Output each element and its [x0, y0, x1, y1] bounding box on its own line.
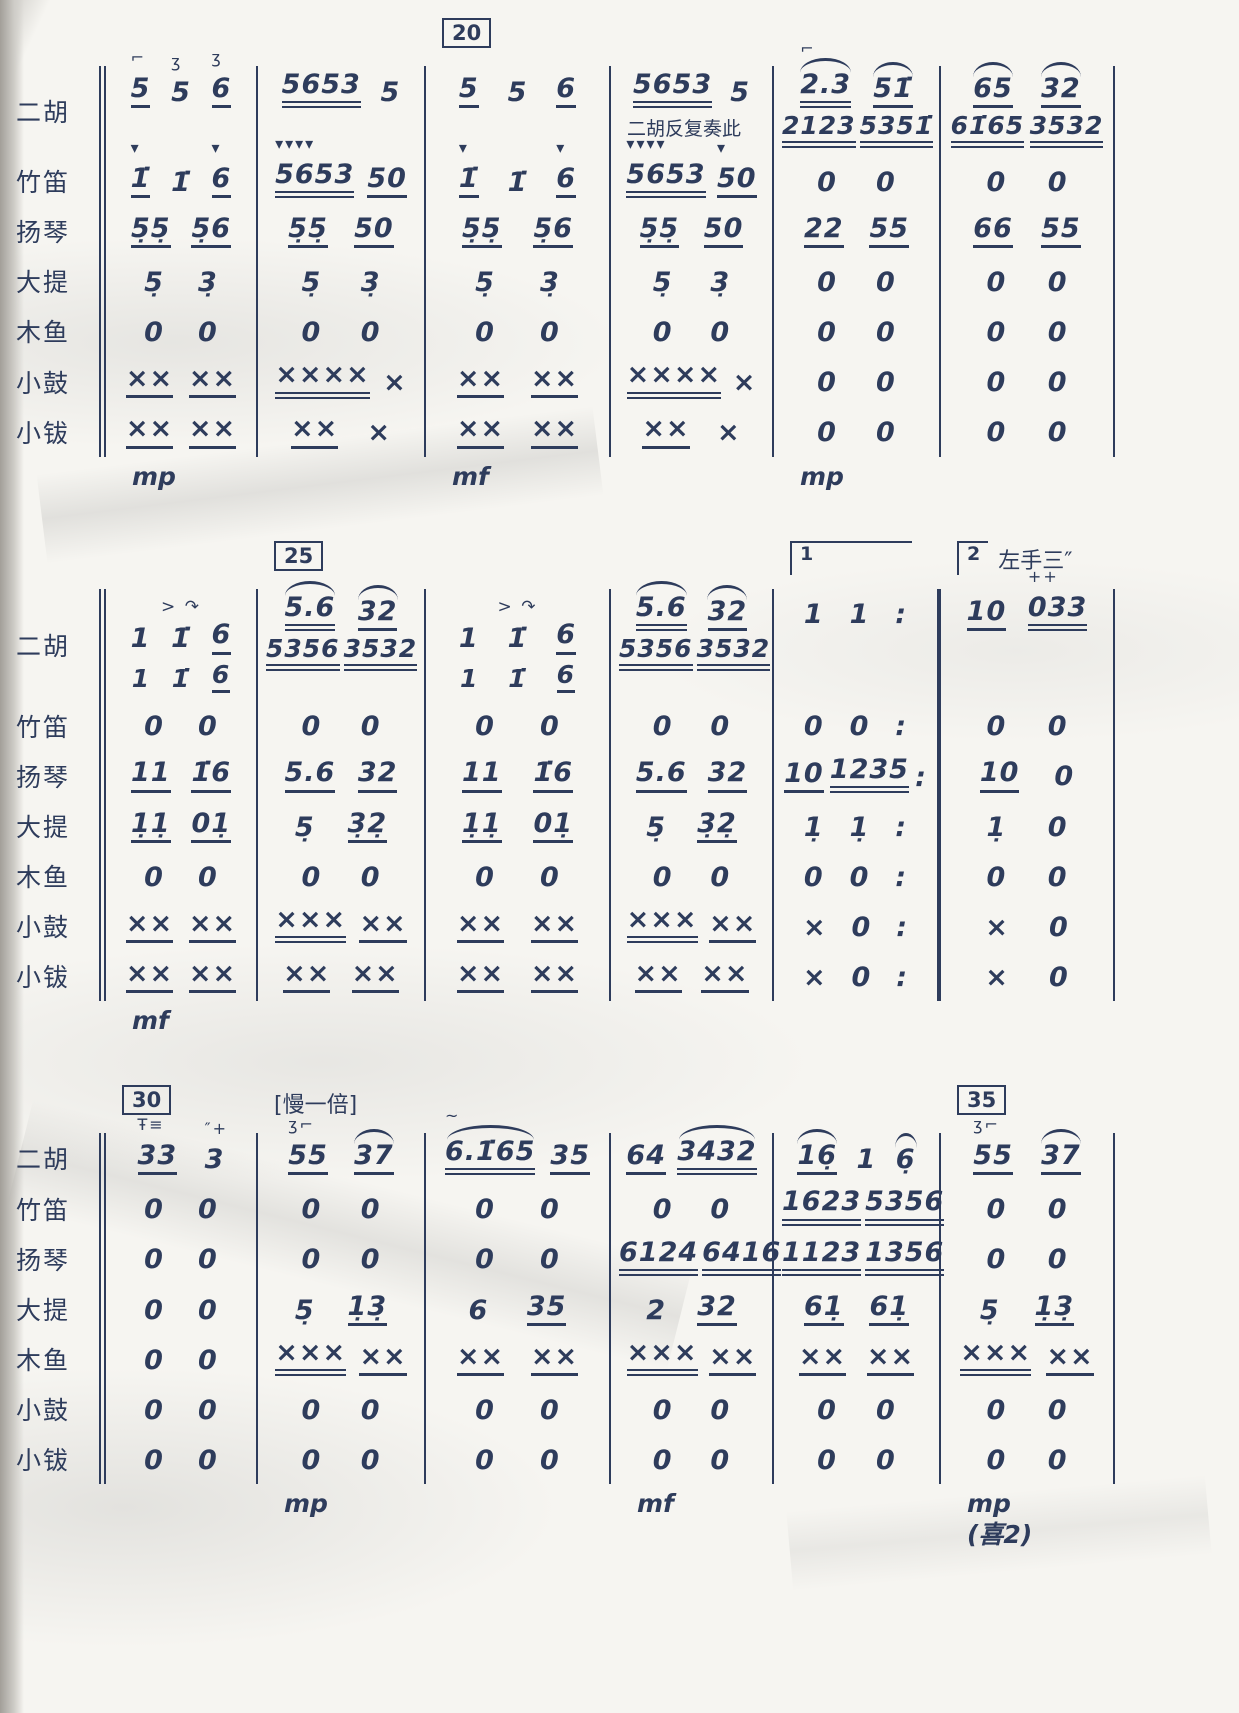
measure-cell: 2255 — [772, 206, 939, 256]
note-text: 22 — [804, 214, 844, 248]
mark-cell — [609, 14, 772, 66]
measure-cell: 00 — [104, 1334, 256, 1384]
notation-line: ×××× — [432, 905, 603, 943]
note-token: 0 — [473, 1245, 497, 1275]
score-sheet: 20二胡5⌐5ʒ6ʒ5653555656535二胡反复奏此2.3⌐51̇2123… — [0, 0, 1239, 1551]
measure-cell: 1̇▾1̇6▾ — [104, 156, 256, 206]
note-token: 0 — [196, 1245, 220, 1275]
notation-line: 00 — [780, 1438, 933, 1476]
note-text: ×× — [709, 909, 756, 943]
note-token: 0 — [196, 1446, 220, 1476]
note-token: 35 — [548, 1141, 592, 1175]
note-token: : — [894, 963, 910, 993]
note-text: ×× — [189, 959, 236, 993]
note-token: ××× — [625, 905, 700, 943]
note-text: 0 — [653, 317, 673, 348]
mark-cell — [104, 537, 256, 589]
note-text: ×× — [635, 959, 682, 993]
instrument-label: 大提 — [8, 1284, 101, 1334]
note-token: 1̇6 — [531, 758, 575, 792]
measure-cell: 653261̇653532 — [939, 66, 1115, 156]
ornament-mark: ▾ — [717, 139, 727, 157]
note-token: 50▾ — [715, 164, 759, 198]
notation-line: ××××× — [617, 905, 766, 943]
notation-line: 00 — [947, 1438, 1107, 1476]
note-token: 0 — [708, 1396, 732, 1426]
note-text: 6 — [557, 661, 575, 693]
note-text: 66 — [973, 214, 1013, 248]
note-token: ××× — [958, 1338, 1033, 1376]
instrument-label: 二胡 — [8, 1133, 101, 1183]
note-text: 0 — [198, 1295, 218, 1326]
note-text: 0 — [1048, 367, 1068, 398]
note-token: 64 — [624, 1141, 668, 1175]
notation-line: ×××× — [112, 955, 250, 993]
instrument-row: 二胡5⌐5ʒ6ʒ5653555656535二胡反复奏此2.3⌐51̇212353… — [8, 66, 1239, 156]
note-text: 61̣ — [804, 1292, 844, 1326]
measure-cell: 635 — [424, 1284, 609, 1334]
note-text: 1̇ — [171, 623, 191, 654]
note-text: ×× — [457, 909, 504, 943]
note-token: 3̣ — [708, 268, 732, 298]
instrument-label: 大提 — [8, 256, 101, 306]
measure-cell: 00 — [424, 1183, 609, 1233]
note-text: 5653 — [275, 160, 354, 198]
note-token: 0 — [984, 318, 1008, 348]
note-token: 0 — [815, 368, 839, 398]
note-text: ×× — [531, 909, 578, 943]
note-token: ×× — [289, 414, 340, 448]
note-text: 0 — [852, 962, 872, 993]
note-text: × — [717, 417, 741, 448]
notation-line: ×××× — [264, 955, 418, 993]
notation-line: 00 — [432, 1438, 603, 1476]
note-token: 6124 — [617, 1238, 700, 1276]
note-text: 11 — [462, 758, 502, 792]
note-text: 1 — [460, 664, 478, 693]
measure-cell: 5.63253563532 — [256, 589, 424, 701]
note-token: 5̣ — [644, 813, 668, 843]
measure-cell: ××× — [609, 407, 772, 457]
ornament-mark: ″+ — [205, 1120, 228, 1138]
note-token: 1̇6 — [189, 758, 233, 792]
measure-cell: 5653▾▾▾▾50▾ — [609, 156, 772, 206]
note-text: 0 — [540, 862, 560, 893]
measure-cell: 101235: — [772, 751, 939, 801]
measure-cell: 16235356 — [772, 1183, 939, 1233]
note-token: 0 — [802, 863, 826, 893]
note-token: 0 — [850, 963, 874, 993]
note-text: ×× — [867, 1342, 914, 1376]
notation-line: 00 — [264, 1238, 418, 1276]
note-token: 32 — [356, 597, 400, 631]
note-text: 5.6 — [636, 593, 687, 631]
note-token: : — [894, 913, 910, 943]
note-token: 0 — [299, 1396, 323, 1426]
note-token: ×× — [124, 364, 175, 398]
note-token: 0 — [874, 1446, 898, 1476]
notation-line: 00 — [432, 310, 603, 348]
note-token: 0 — [196, 1296, 220, 1326]
note-token: 5653▾▾▾▾ — [273, 160, 356, 198]
measure-cell: > ↷11̇611̇6 — [424, 589, 609, 701]
note-token: 5̣6 — [189, 214, 233, 248]
note-text: 3432 — [677, 1137, 756, 1175]
note-token: × — [731, 368, 759, 398]
notation-line: 16235356 — [780, 1187, 933, 1225]
notation-line: 643432 — [617, 1137, 766, 1175]
note-token: 0 — [815, 418, 839, 448]
note-text: 0 — [301, 1244, 321, 1275]
note-text: 1̣3̣ — [1035, 1292, 1075, 1326]
measure-cell: 00: — [772, 851, 939, 901]
note-text: 0 — [361, 862, 381, 893]
note-token: 66 — [971, 214, 1015, 248]
note-token: 5̣5̣ — [460, 214, 504, 248]
notation-line: 00 — [264, 705, 418, 743]
note-text: 0 — [653, 1395, 673, 1426]
notation-line: 232 — [617, 1288, 766, 1326]
note-text: 16̣ — [797, 1141, 837, 1175]
notation-line: 00 — [432, 855, 603, 893]
measure-cell: 00 — [772, 1384, 939, 1434]
note-text: ×× — [126, 959, 173, 993]
notation-line: 5653▾▾▾▾50▾ — [617, 160, 766, 198]
note-text: 1 — [804, 599, 824, 630]
note-text: ×××× — [275, 360, 370, 398]
note-token: 6416 — [700, 1238, 783, 1276]
note-text: 0 — [301, 1194, 321, 1225]
note-token: 1̣3̣ — [1033, 1292, 1077, 1326]
note-token: 3432 — [675, 1137, 758, 1175]
note-text: ××× — [275, 1338, 346, 1376]
notation-line: 00 — [432, 705, 603, 743]
note-token: × — [715, 418, 743, 448]
note-token: 6 — [467, 1296, 491, 1326]
measure-cell: ×××× — [609, 951, 772, 1001]
note-text: ×× — [642, 414, 689, 448]
measure-cell: 5̣5̣5̣6 — [104, 206, 256, 256]
note-text: 1 — [459, 623, 479, 654]
ornament-mark: ʒ — [212, 49, 223, 67]
mark-cell — [772, 14, 939, 66]
note-token: 0 — [359, 863, 383, 893]
note-text: 0 — [986, 1244, 1006, 1275]
measure-cell: 00 — [256, 306, 424, 356]
note-text: 0 — [1048, 317, 1068, 348]
note-token: 0 — [359, 1396, 383, 1426]
notation-line: 00 — [947, 260, 1107, 298]
ornament-mark: ▾ — [212, 139, 222, 157]
note-token: 1̇▾ — [129, 164, 153, 198]
measure-cell: 00 — [939, 1183, 1115, 1233]
notation-line: 11: — [780, 593, 931, 631]
dynamic-marking: mf — [132, 1006, 169, 1035]
measure-cell: 00 — [939, 407, 1115, 457]
note-token: 0 — [815, 168, 839, 198]
ornament-mark: ▾ — [556, 139, 566, 157]
note-text: 6124 — [619, 1238, 698, 1276]
note-token: 0 — [538, 863, 562, 893]
note-token: ×× — [640, 414, 691, 448]
note-text: 5653 — [282, 70, 361, 108]
note-text: 5 — [459, 74, 479, 108]
note-token: 65 — [971, 74, 1015, 108]
note-text: 0 — [144, 711, 164, 742]
measure-cell: ×××× — [772, 1334, 939, 1384]
note-text: 0 — [198, 1194, 218, 1225]
note-token: 1̇ — [506, 624, 530, 654]
notation-line: 5̣3̣2̣ — [264, 805, 418, 843]
note-text: 0 — [144, 1194, 164, 1225]
rehearsal-mark: 30 — [122, 1085, 171, 1115]
notation-line: 00 — [264, 1388, 418, 1426]
note-text: 0 — [361, 317, 381, 348]
measure-cell: ××××× — [256, 356, 424, 406]
notation-line: 55ʒ⌐37 — [264, 1137, 418, 1175]
note-text: 0 — [475, 1194, 495, 1225]
dynamics-cell — [609, 1001, 772, 1041]
note-token: × — [365, 418, 393, 448]
note-text: 32 — [358, 597, 398, 631]
note-text: 32 — [708, 597, 748, 631]
note-text: 3̣ — [710, 267, 730, 298]
note-text: 0 — [986, 1445, 1006, 1476]
note-token: 0 — [538, 1446, 562, 1476]
measure-cell: 00 — [939, 1384, 1115, 1434]
note-token: 0 — [815, 318, 839, 348]
note-text: 0 — [850, 711, 870, 742]
note-token: 01̣ — [189, 809, 233, 843]
notation-line: ×××× — [432, 955, 603, 993]
dynamics-cell — [256, 457, 424, 497]
note-token: 0 — [359, 712, 383, 742]
note-text: 5̣ — [295, 812, 315, 843]
note-token: 0 — [984, 712, 1008, 742]
note-token: ×× — [187, 364, 238, 398]
note-text: 51̇ — [873, 74, 913, 108]
note-token: 0 — [142, 1245, 166, 1275]
measure-cell: > ↷11̇611̇6 — [104, 589, 256, 701]
note-token: 6 — [554, 620, 578, 654]
notation-line: 00 — [780, 310, 933, 348]
note-token: 0 — [874, 418, 898, 448]
note-text: 5.6 — [285, 593, 336, 631]
note-token: 37 — [1039, 1141, 1083, 1175]
notation-line: 111̇6 — [432, 755, 603, 793]
note-token: 0 — [142, 318, 166, 348]
note-token: 50 — [365, 164, 409, 198]
note-token: 0 — [651, 712, 675, 742]
note-text: 0 — [475, 1395, 495, 1426]
measure-cell: 00 — [939, 851, 1115, 901]
note-text: 1 — [850, 599, 870, 630]
note-text: : — [895, 812, 907, 843]
note-text: 0 — [198, 711, 218, 742]
mark-cell — [256, 14, 424, 66]
note-token: 37 — [352, 1141, 396, 1175]
note-text: 0 — [1048, 862, 1068, 893]
notation-line: ××××× — [264, 905, 418, 943]
note-text: 55 — [1041, 214, 1081, 248]
measure-cell: 00 — [104, 1434, 256, 1484]
note-token: 32 — [1039, 74, 1083, 108]
notation-line: ×××× — [432, 411, 603, 449]
notation-line: 00 — [947, 1388, 1107, 1426]
ornament-mark: ⌐ — [131, 49, 146, 67]
measure-cell: 00 — [609, 851, 772, 901]
note-token: 0 — [142, 1346, 166, 1376]
ornament-mark: ʒ — [171, 53, 182, 71]
measure-cell: 00 — [256, 1434, 424, 1484]
note-token: 0 — [874, 368, 898, 398]
note-token: 61̣ — [802, 1292, 846, 1326]
note-token: 0 — [1046, 1446, 1070, 1476]
note-text: 5356 — [266, 635, 340, 671]
measure-cell: 100 — [939, 751, 1115, 801]
note-text: 0 — [1048, 1194, 1068, 1225]
note-token: 1̣ — [984, 813, 1008, 843]
note-token: × — [801, 963, 829, 993]
note-token: 0 — [708, 1446, 732, 1476]
note-text: 10 — [784, 759, 824, 793]
note-text: 6̣ — [896, 1144, 916, 1175]
note-token: 5356 — [264, 635, 342, 671]
note-token: 0 — [473, 1396, 497, 1426]
notation-line: 5.632 — [617, 593, 766, 631]
note-token: 0 — [299, 1195, 323, 1225]
note-token: 3532 — [1028, 112, 1106, 148]
notation-line: 56535 — [264, 70, 418, 108]
note-text: 0 — [361, 1445, 381, 1476]
dynamic-marking: mf — [637, 1489, 674, 1518]
note-text: 5 — [171, 77, 191, 108]
note-text: 0 — [475, 1244, 495, 1275]
note-token: 51̇ — [871, 74, 915, 108]
note-text: 0 — [876, 367, 896, 398]
note-token: 0 — [1046, 1245, 1070, 1275]
measure-cell: ×××× — [424, 1334, 609, 1384]
note-text: 5 — [730, 77, 750, 108]
note-text: 10 — [967, 597, 1007, 631]
note-token: 11 — [460, 758, 504, 792]
system-3: 30[慢一倍]35二胡33Ŧ≡3″+55ʒ⌐376.1̇65~356434321… — [8, 1081, 1239, 1550]
note-text: 5̣6 — [533, 214, 573, 248]
notation-line: 1̣1̣01̣ — [112, 805, 250, 843]
note-token: 5̣5̣ — [129, 214, 173, 248]
note-token: 6.1̇65~ — [443, 1137, 537, 1175]
note-token: ×× — [1044, 1342, 1095, 1376]
dynamics-cell: mf — [609, 1484, 772, 1551]
note-text: : — [896, 912, 908, 943]
notation-line: 1̣1̣01̣ — [432, 805, 603, 843]
notation-line: 00 — [617, 855, 766, 893]
measure-cell: ×0 — [939, 951, 1115, 1001]
instrument-row: 竹笛000000001623535600 — [8, 1183, 1239, 1233]
notation-line: 101235: — [780, 755, 931, 793]
instrument-row: 木鱼000000000000 — [8, 306, 1239, 356]
note-text: 1̇ — [508, 664, 526, 693]
notation-line: 5653▾▾▾▾50 — [264, 160, 418, 198]
notation-line: 00 — [947, 160, 1107, 198]
note-token: 0 — [874, 268, 898, 298]
note-token: 1 — [457, 624, 481, 654]
tempo-annotation: [慢一倍] — [274, 1085, 357, 1119]
measure-cell: 00 — [772, 156, 939, 206]
note-text: 0 — [301, 862, 321, 893]
measure-cell: 00 — [772, 356, 939, 406]
note-text: 6 — [212, 661, 230, 693]
notation-line: ×××× — [780, 1338, 933, 1376]
note-text: 1 — [131, 623, 151, 654]
note-token: ×× — [529, 1342, 580, 1376]
measure-cell: ×××× — [424, 407, 609, 457]
note-token: 0 — [651, 1446, 675, 1476]
note-text: 32 — [697, 1292, 737, 1326]
rehearsal-mark: 35 — [957, 1085, 1006, 1115]
measure-cell: 00 — [256, 1384, 424, 1434]
note-text: 5̣ — [144, 267, 164, 298]
note-token: 0 — [196, 1346, 220, 1376]
note-token: 0 — [651, 1195, 675, 1225]
notation-line: 1̇▾1̇6▾ — [112, 160, 250, 198]
mark-cell: 1 — [772, 537, 939, 589]
note-text: 0 — [710, 317, 730, 348]
notation-line: 5.632 — [264, 593, 418, 631]
note-text: 0 — [710, 711, 730, 742]
ornament-mark: ⌐ — [800, 40, 815, 58]
note-text: × — [985, 912, 1009, 943]
notation-line: 5.632 — [617, 755, 766, 793]
note-text: 0 — [653, 1194, 673, 1225]
measure-cell: 5̣1̣3̣ — [939, 1284, 1115, 1334]
instrument-row: 扬琴111̇65.632111̇65.632101235:100 — [8, 751, 1239, 801]
notation-line: 1̣0 — [947, 805, 1107, 843]
note-text: 0 — [144, 1295, 164, 1326]
note-token: 1 — [130, 665, 152, 693]
note-token: 16̣ — [795, 1141, 839, 1175]
note-text: 6 — [469, 1295, 489, 1326]
note-token: 1̇ — [169, 168, 193, 198]
note-text: 0 — [361, 711, 381, 742]
measure-cell: 00 — [939, 1434, 1115, 1484]
note-text: ××× — [960, 1338, 1031, 1376]
notation-line: 11̇6 — [432, 659, 603, 693]
note-text: 50 — [704, 214, 744, 248]
instrument-label: 小钹 — [8, 1434, 101, 1484]
note-text: 0 — [144, 317, 164, 348]
note-token: 0 — [708, 318, 732, 348]
note-token: 3̣ — [538, 268, 562, 298]
note-token: ×××× — [625, 360, 724, 398]
note-text: 5̣5̣ — [131, 214, 171, 248]
measure-cell: 00 — [424, 701, 609, 751]
note-text: 3532 — [1030, 112, 1104, 148]
note-text: 5653 — [633, 70, 712, 108]
note-text: : — [895, 711, 907, 742]
note-text: 5356 — [865, 1187, 944, 1225]
note-text: 0 — [986, 1395, 1006, 1426]
note-text: 0 — [540, 1244, 560, 1275]
measure-cell: 5⌐5ʒ6ʒ — [104, 66, 256, 156]
note-token: 5̣ — [651, 268, 675, 298]
note-text: 5̣5̣ — [288, 214, 328, 248]
note-token: 0 — [984, 1396, 1008, 1426]
notation-line: 00 — [432, 1238, 603, 1276]
note-text: 0 — [361, 1395, 381, 1426]
measure-cell: 00 — [424, 1234, 609, 1284]
notation-line: 10033++ — [947, 593, 1107, 631]
